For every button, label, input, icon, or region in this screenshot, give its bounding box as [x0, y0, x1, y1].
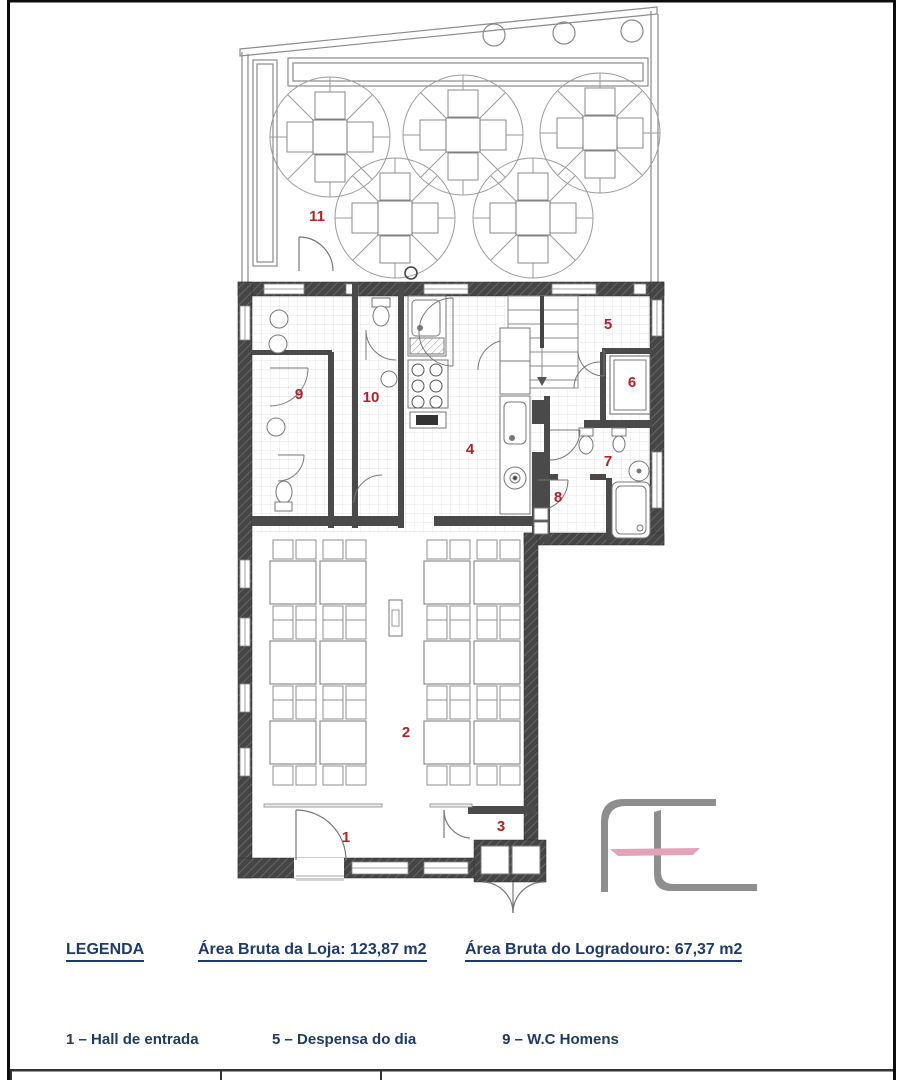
- room-label-6: 6: [628, 374, 636, 391]
- washbasin: [270, 310, 288, 328]
- toilet-tank: [579, 428, 593, 436]
- partition-rail: [430, 804, 472, 807]
- room-label-1: 1: [342, 829, 350, 846]
- room-label-8: 8: [554, 489, 562, 506]
- toilet: [276, 481, 292, 503]
- legend-column-1: 1 – Hall de entrada 2 – Sala 3 - Arrumo …: [66, 980, 199, 1080]
- frame-right: [893, 0, 896, 1080]
- room-label-2: 2: [402, 724, 410, 741]
- legend-column-2: 5 – Despensa do dia 6 – Arca frigorífica…: [272, 980, 464, 1080]
- partition-rail: [264, 804, 382, 807]
- room-label-4: 4: [466, 441, 475, 458]
- locker: [534, 522, 548, 534]
- room-label-9: 9: [295, 386, 303, 403]
- legend-column-3: 9 – W.C Homens 10 - W.C Mulheres 11 - Lo…: [498, 980, 631, 1080]
- room-label-10: 10: [363, 389, 380, 406]
- floor-plan-page: 1 2 3 4 5 6 7 8 9 10 11 LEGENDA Área Bru…: [0, 0, 899, 1080]
- washbasin: [267, 418, 285, 436]
- kitchen-sink: [412, 300, 440, 336]
- locker: [534, 508, 548, 520]
- frame-left: [7, 0, 10, 1080]
- wall-right-lower: [524, 533, 538, 878]
- room-label-11: 11: [309, 208, 325, 225]
- room-label-5: 5: [604, 316, 612, 333]
- legend-item-1: 1 – Hall de entrada: [66, 1028, 199, 1052]
- legend-item-9: 9 – W.C Homens: [498, 1028, 631, 1052]
- kitchen-sink: [504, 402, 526, 444]
- legend-title: LEGENDA: [66, 941, 144, 962]
- frame-top: [7, 0, 894, 3]
- toilet: [579, 436, 593, 454]
- tiled-floor: [252, 292, 652, 532]
- logo-pink-bar: [610, 848, 700, 856]
- bidet: [613, 436, 625, 452]
- bidet-top: [612, 428, 626, 436]
- room-label-3: 3: [497, 818, 505, 835]
- floor-plan-drawing: 1 2 3 4 5 6 7 8 9 10 11: [0, 0, 899, 1080]
- worktop: [410, 338, 444, 354]
- washbasin: [381, 371, 397, 387]
- toilet: [373, 306, 389, 326]
- area-shop-label: Área Bruta da Loja: 123,87 m2: [198, 941, 427, 962]
- washbasin: [269, 335, 287, 353]
- legend-item-5: 5 – Despensa do dia: [272, 1028, 464, 1052]
- room-label-7: 7: [604, 453, 612, 470]
- area-courtyard-label: Área Bruta do Logradouro: 67,37 m2: [465, 941, 742, 962]
- toilet-tank: [275, 502, 292, 511]
